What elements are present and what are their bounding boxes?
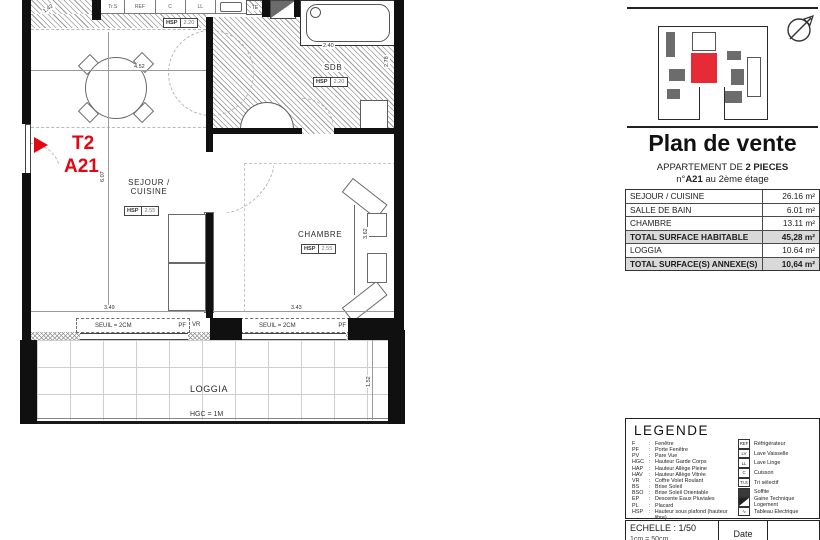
kitchen-strip: Tr.S REF C LL [101, 0, 246, 14]
dimension-line [31, 70, 206, 71]
info-panel: Plan de vente APPARTEMENT DE 2 PIECES n°… [620, 0, 820, 540]
zone-dashed-line [31, 29, 206, 30]
table-row: CHAMBRE 13.11 m² [626, 217, 819, 231]
legend-icon-row: REFRéfrigérateur [738, 439, 818, 449]
zone-dashed-line [31, 127, 206, 128]
scale-sub-label: 1cm = 50cm [626, 533, 718, 540]
vr-label: VR [192, 322, 200, 328]
door-swing-arc [302, 98, 333, 128]
wall-segment [22, 0, 31, 124]
keyplan-courtyard [699, 87, 725, 120]
hgc-label: HGC = 1M [190, 411, 223, 418]
surface-table: SEJOUR / CUISINE 26.16 m² SALLE DE BAIN … [625, 189, 820, 271]
dimension-line [372, 340, 373, 420]
subtitle-line2: n°A21 au 2ème étage [627, 174, 818, 185]
floor-plan: Tr.S REF C LL TE HSP 2.20 [0, 0, 420, 540]
lave-vaisselle-icon: LV [738, 449, 750, 459]
wall-segment [262, 0, 270, 17]
wall-segment [348, 318, 394, 340]
page-title: Plan de vente [627, 130, 818, 157]
wall-hatch [30, 0, 92, 14]
keyplan-core [747, 57, 761, 97]
cuisson-cell: C [156, 0, 186, 13]
tri-selectif-icon: Tr.S [738, 478, 750, 488]
date-cell: Date [719, 521, 768, 540]
unit-type-label: T2 [72, 133, 94, 155]
unit-code-label: A21 [64, 156, 99, 178]
wall-segment [206, 128, 302, 134]
dimension-label: 3.43 [290, 305, 303, 311]
wall-segment [294, 0, 300, 17]
divider-rule [627, 126, 818, 128]
wall-segment [206, 134, 213, 152]
tri-selectif-cell: Tr.S [101, 0, 125, 13]
tableau-electrique-icon: ∿ [738, 507, 750, 517]
entry-door-leaf [25, 124, 31, 176]
loggia-edge-line [37, 418, 388, 419]
legend-icon-row: CCuisson [738, 468, 818, 478]
legend-box: LEGENDE F:Fenêtre PF:Porte Fenêtre PV:Pa… [625, 418, 820, 519]
scale-cell: ECHELLE : 1/50 1cm = 50cm [626, 521, 719, 540]
sofa-cushion [168, 263, 206, 311]
wall-segment [210, 318, 242, 340]
table-row-total: TOTAL SURFACE HABITABLE 45,28 m² [626, 231, 819, 245]
hsp-box-sdb: HSP 2.20 [313, 77, 348, 87]
bathtub-faucet [310, 7, 321, 18]
legend-title: LEGENDE [634, 423, 709, 438]
keyplan-highlight [691, 53, 717, 83]
loggia-bottom-line [20, 421, 405, 424]
wall-segment [206, 17, 213, 134]
divider-rule [627, 7, 818, 9]
hsp-box-sejour: HSP 2.55 [124, 206, 159, 216]
window-frame [80, 333, 188, 340]
keyplan-core [692, 32, 716, 51]
wall-segment [22, 173, 31, 340]
building-keyplan [658, 26, 768, 120]
dimension-label: 6.07 [100, 170, 106, 183]
wall-segment [92, 0, 101, 20]
dimension-label: 2.40 [322, 43, 335, 49]
keyplan-wall [727, 51, 741, 60]
titleblock: ECHELLE : 1/50 1cm = 50cm Date [625, 520, 820, 540]
table-row-total: TOTAL SURFACE(S) ANNEXE(S) 10,64 m² [626, 258, 819, 271]
soffite-icon [738, 488, 750, 498]
legend-abbreviations: F:Fenêtre PF:Porte Fenêtre PV:Pare Vue H… [632, 441, 740, 521]
hsp-box-kitchen: HSP 2.20 [163, 18, 198, 28]
refrigerateur-cell: REF [125, 0, 155, 13]
seuil-box-right: SEUIL = 2CM PF [240, 318, 350, 333]
dimension-label: 3.49 [103, 305, 116, 311]
keyplan-wall [667, 89, 680, 99]
window-frame [242, 333, 346, 340]
north-compass-icon [783, 10, 819, 46]
wc-icon [360, 100, 388, 130]
gaine-technique-legend-icon [738, 497, 750, 507]
dimension-label: 3.62 [363, 227, 369, 240]
gaine-technique-icon [270, 0, 296, 19]
wall-segment [394, 0, 404, 332]
dimension-line [108, 32, 109, 311]
lave-linge-cell: LL [186, 0, 216, 13]
sink-icon [220, 2, 242, 12]
refrigerateur-icon: REF [738, 439, 750, 449]
date-label: Date [733, 521, 752, 539]
chambre-label: CHAMBRE [296, 230, 344, 239]
dimension-line [213, 311, 394, 312]
dimension-label: 4.52 [133, 64, 146, 70]
plan-de-vente-sheet: Tr.S REF C LL TE HSP 2.20 [0, 0, 820, 540]
legend-icon-row: LLLave Linge [738, 458, 818, 468]
dimension-label: 2.78 [384, 55, 390, 68]
loggia-label: LOGGIA [188, 385, 230, 394]
legend-icons: REFRéfrigérateur LVLave Vaisselle LLLave… [738, 439, 818, 517]
dimension-line [31, 311, 206, 312]
door-swing-arc [213, 152, 274, 213]
table-row: LOGGIA 10.64 m² [626, 244, 819, 258]
lave-linge-icon: LL [738, 458, 750, 468]
empty-cell [768, 521, 819, 540]
keyplan-wall [725, 91, 742, 103]
sofa-cushion [168, 214, 206, 263]
dining-table-icon [62, 40, 168, 135]
keyplan-wall [731, 69, 744, 85]
sdb-label: SDB [322, 63, 344, 72]
dimension-label: 1.52 [366, 375, 372, 388]
scale-label: ECHELLE : 1/50 [626, 521, 718, 533]
sink-cell [216, 0, 246, 13]
wall-segment [206, 213, 213, 318]
subtitle-line1: APPARTEMENT DE 2 PIECES [627, 162, 818, 173]
entry-arrow-icon [34, 137, 48, 153]
wall-segment [388, 330, 405, 424]
table-row: SEJOUR / CUISINE 26.16 m² [626, 190, 819, 204]
legend-icon-row: LVLave Vaisselle [738, 449, 818, 459]
legend-icon-row: ∿Tableau Electrique [738, 507, 818, 517]
loggia-tiles [37, 340, 388, 420]
wall-segment [20, 340, 37, 424]
keyplan-wall [669, 69, 685, 81]
keyplan-wall [666, 32, 675, 57]
legend-icon-row: Tr.STri sélectif [738, 478, 818, 488]
hsp-box-chambre: HSP 2.55 [301, 244, 336, 254]
wall-segment [334, 128, 394, 134]
seuil-box-left: SEUIL = 2CM PF [76, 318, 190, 333]
bathtub-icon [300, 0, 396, 46]
legend-icon-row: Gaine Technique Logement [738, 497, 818, 507]
table-row: SALLE DE BAIN 6.01 m² [626, 204, 819, 218]
cuisson-icon: C [738, 468, 750, 478]
sejour-label: SEJOUR / CUISINE [115, 178, 183, 196]
